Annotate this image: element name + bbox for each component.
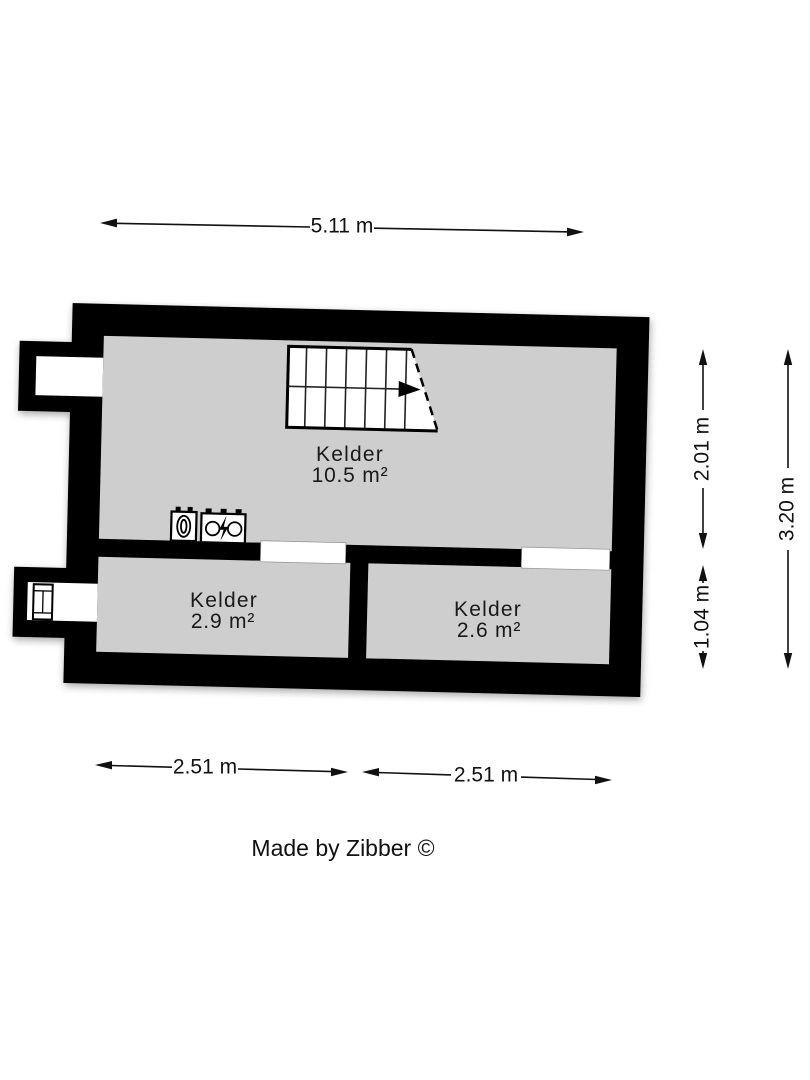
credit-text: Made by Zibber © [251, 835, 434, 861]
arrow-up-icon [699, 349, 707, 365]
arrow-up-icon [784, 349, 792, 365]
arrow-down-icon [699, 653, 707, 669]
arrow-left-icon [100, 219, 117, 228]
dimension-label-right-upper: 2.01 m [691, 417, 714, 481]
floor-plan-page: 5.11 m 2.01 m 1.04 m 3.20 m 2.51 m 2.51 … [0, 0, 810, 1080]
room-label-left: Kelder [190, 589, 258, 612]
arrow-up-icon [699, 565, 707, 581]
dimension-label-top: 5.11 m [311, 215, 374, 238]
room-area-main: 10.5 m² [312, 464, 389, 487]
room-label-main: Kelder [316, 443, 384, 466]
arrow-right-icon [567, 228, 584, 237]
door-opening-right [521, 547, 609, 570]
room-area-left: 2.9 m² [191, 610, 255, 633]
arrow-left-icon [362, 768, 379, 776]
arrow-right-icon [331, 768, 348, 776]
door-opening-left [260, 541, 345, 564]
electricity-meter-icon [201, 508, 246, 543]
floor-plan-svg: 5.11 m 2.01 m 1.04 m 3.20 m 2.51 m 2.51 … [0, 0, 810, 1080]
window-icon [33, 584, 53, 619]
dimension-label-bottom-right: 2.51 m [454, 764, 518, 787]
dimension-label-right-lower: 1.04 m [691, 585, 714, 649]
arrow-down-icon [784, 653, 792, 669]
dimension-label-bottom-left: 2.51 m [173, 756, 237, 779]
dimension-label-right-total: 3.20 m [776, 477, 799, 541]
arrow-right-icon [595, 776, 612, 784]
heater-icon [171, 507, 197, 542]
upper-left-niche-interior [35, 356, 103, 397]
room-label-right: Kelder [454, 598, 522, 621]
building-group [11, 302, 649, 697]
arrow-left-icon [95, 761, 112, 769]
room-area-right: 2.6 m² [457, 619, 521, 642]
arrow-down-icon [699, 533, 707, 549]
